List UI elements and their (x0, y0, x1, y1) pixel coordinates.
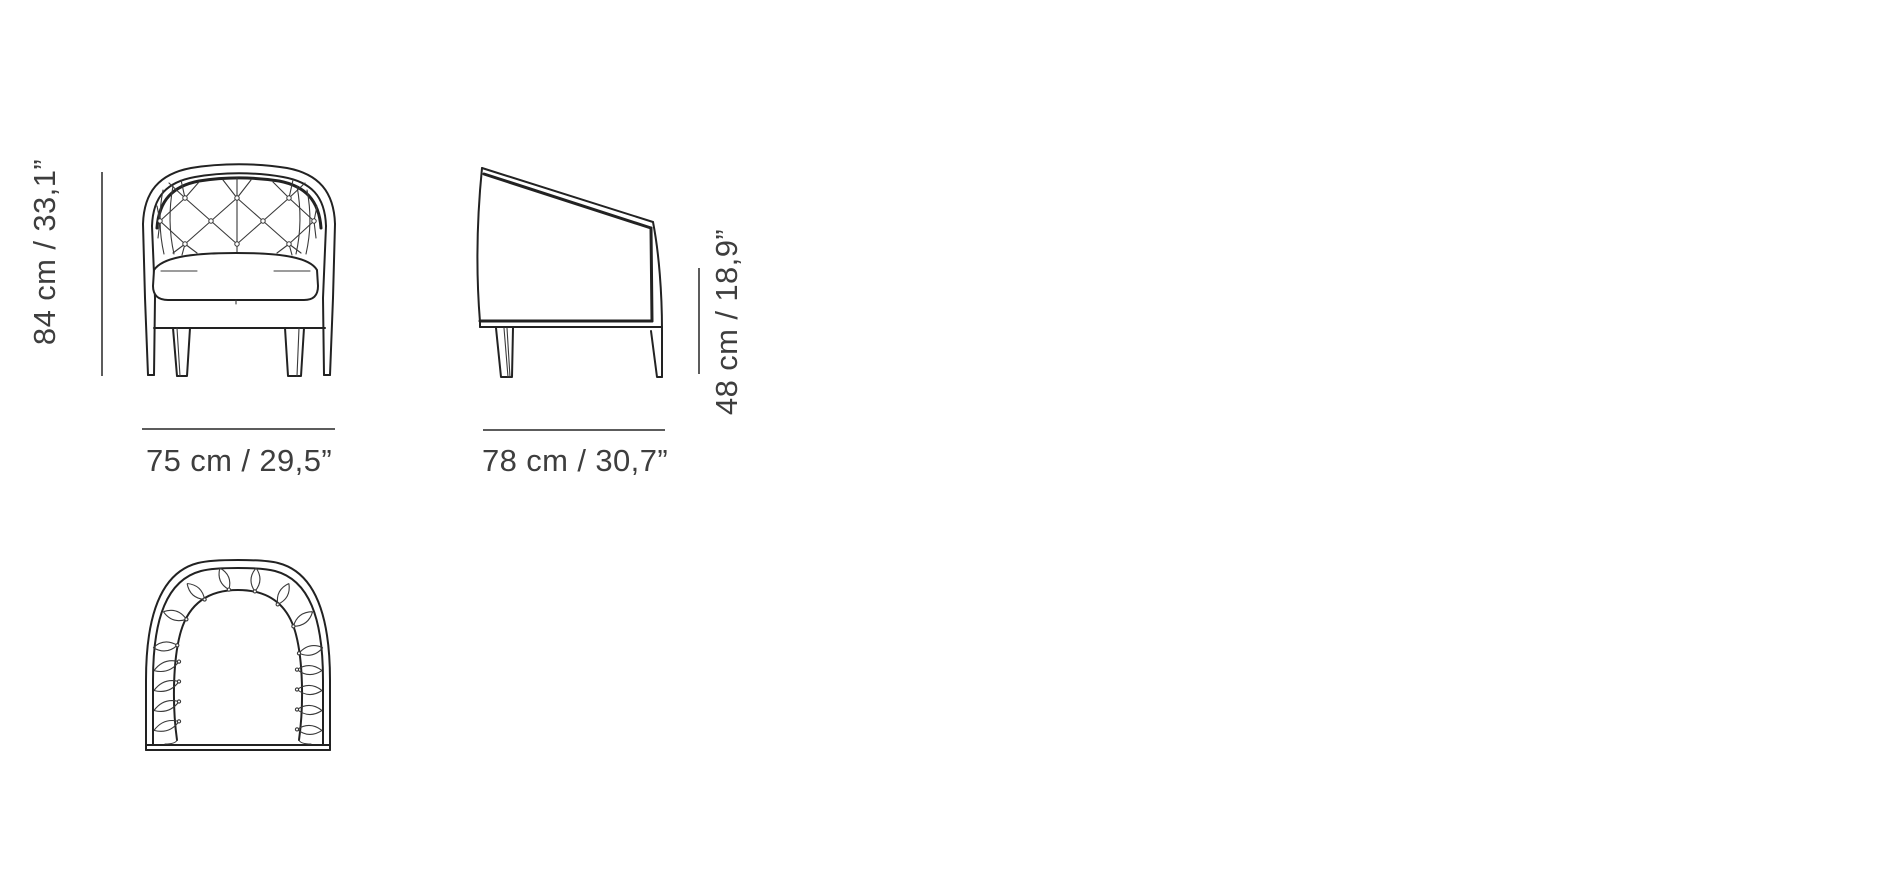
top-view (138, 552, 338, 757)
front-view-drawing (133, 158, 345, 383)
height-dimension-label: 84 cm / 33,1” (27, 142, 63, 362)
top-view-tufting (153, 568, 323, 734)
depth-dimension-label: 78 cm / 30,7” (465, 443, 685, 479)
width-dimension-line (142, 428, 335, 430)
top-view-drawing (138, 552, 338, 757)
depth-dimension-line (483, 429, 665, 431)
height-dimension-line (101, 172, 103, 376)
seat-height-dimension-label: 48 cm / 18,9” (709, 212, 745, 432)
side-view (470, 158, 682, 383)
front-tufting (157, 178, 317, 255)
width-dimension-label: 75 cm / 29,5” (129, 443, 349, 479)
side-view-drawing (470, 158, 682, 383)
seat-height-dimension-line (698, 268, 700, 374)
front-view (133, 158, 345, 383)
